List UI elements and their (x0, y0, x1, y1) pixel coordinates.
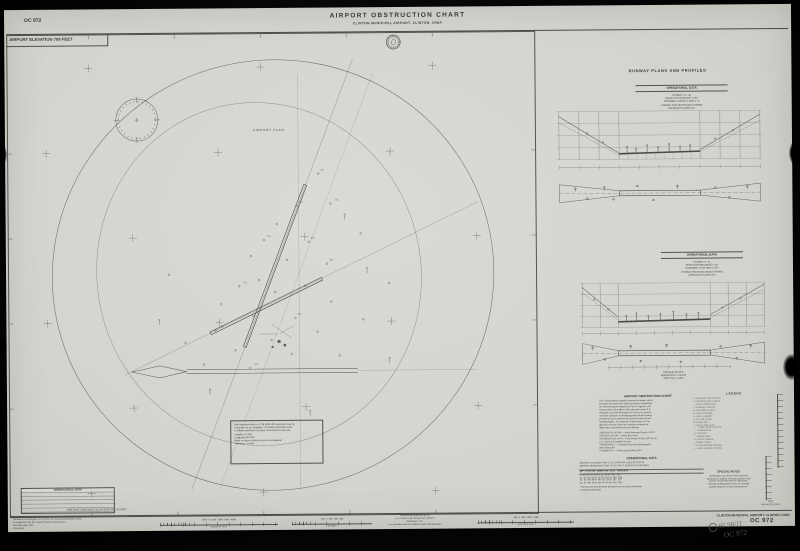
table-rows: 3 41°49'32"N 90°20'14"W 705 70521 41°50'… (580, 473, 704, 486)
spot-elevation: 723 (254, 363, 258, 366)
spot-elevation: 788 (329, 259, 333, 262)
operational-data-mini-1-title: OPERATIONAL DATA (636, 84, 728, 92)
runway-14-32 (243, 184, 306, 347)
vertical-scale-lower (765, 456, 771, 500)
extended-runway-centerline-2 (123, 201, 479, 375)
special-notes-title: SPECIAL NOTES (692, 470, 766, 474)
text-line: PLANIMETRY — Field inspected May 1967 (599, 450, 697, 454)
edge-clip-right-upper (789, 141, 800, 165)
vertical-scale-caption: FEET MEAN SEA LEVEL (750, 501, 792, 507)
legend-items: ⊙ Obstruction with elevation○ Obstructio… (693, 397, 775, 450)
spot-elevation: 836 (311, 237, 315, 240)
spot-elevation: 748 (298, 201, 302, 204)
note-line: grades between runway end elevations. (692, 486, 766, 489)
description-paragraph-2: HORIZONTAL DATUM — North American Datum … (599, 432, 697, 453)
vertical-scale-upper (777, 394, 784, 468)
legend: LEGEND ⊙ Obstruction with elevation○ Obs… (693, 392, 775, 450)
table-footnotes: * Runway end and threshold elevations ar… (580, 486, 704, 493)
legend-item: –·– Airport property boundary (693, 447, 775, 451)
runway-3-21 (210, 277, 323, 334)
special-notes-lines: All elevations are above mean sea level.… (692, 475, 766, 490)
edge-clip-right-lower (783, 354, 800, 380)
runway-plan-14-32 (557, 180, 762, 206)
survey-note-lines: Field elevation datum of 708 (MSL 29') s… (234, 423, 322, 446)
spot-elevation: 761 (320, 169, 324, 172)
operational-data-mini-2-title: OPERATIONAL DATA (661, 251, 743, 259)
chart-limit-ellipse-inner (66, 73, 452, 474)
section-line-horizontal (358, 369, 477, 370)
scale-bar-profile: 500 0 500 1000 1500 SCALE OF FEET (478, 517, 574, 528)
scale-bar-feet-label: SCALE OF FEET (160, 526, 278, 530)
scale-bar-feet-ruler (160, 524, 278, 526)
survey-note-box: Field elevation datum of 708 (MSL 29') s… (230, 420, 323, 465)
profile-scale-caption: PROFILE SCALESHORIZONTAL 1:12,000VERTICA… (611, 370, 736, 381)
taxiways-and-buildings (259, 324, 293, 348)
feet-note: OBSTRUCTIONS AND ELEVATIONS ARE IN FEET (67, 508, 127, 512)
note-line: × denotes – in feet (234, 442, 322, 446)
credit-block: Prepared and published by theU.S. COAST … (360, 514, 470, 526)
vscale-caption-line: MEAN SEA LEVEL (750, 504, 792, 507)
description-paragraph-1: This chart presents a graphic portrayal … (599, 400, 697, 430)
footer-publisher-lines: Published at Washington, D.C. by the U.S… (13, 519, 82, 531)
credit-line: In cooperation with the Federal Aviation… (360, 523, 470, 527)
airport-plan-map: AIRPORT PLAN 761 792 748 836 715 788 742… (6, 31, 539, 518)
legend-title: LEGEND (693, 392, 775, 397)
operational-data-mini-1: OPERATIONAL DATA RUNWAY 14 - 32EFFECTIVE… (622, 84, 742, 110)
spot-elevation: 715 (267, 235, 271, 238)
scale-bar-profile-label: SCALE OF FEET (478, 524, 574, 528)
aeronautical-data-title: AERONAUTICAL DATA (22, 488, 114, 492)
turf-strip (132, 364, 358, 378)
spot-elevation: 742 (243, 281, 247, 284)
spot-elevation: 792 (334, 198, 338, 201)
footnote-line: † Displaced threshold. (580, 489, 704, 493)
spot-elevation: 799 (297, 313, 301, 316)
caption-line: VERTICAL 1:1,200 (611, 377, 736, 381)
handwriting-line: OC 972 (723, 528, 748, 540)
scale-bar-profile-ruler (478, 522, 574, 524)
spot-elevation: 768 (219, 325, 223, 328)
obstruction-symbols (158, 172, 392, 417)
operational-data-mini-2-lines: RUNWAY 3 - 21EFFECTIVE GRADIENT 0.2%PAVE… (647, 260, 757, 277)
chart-description-block: AIRPORT OBSTRUCTION CHART This chart pre… (599, 395, 697, 454)
pencil-circle-mark (708, 522, 718, 532)
runway-plans-profiles-title: RUNWAY PLANS AND PROFILES (544, 68, 790, 75)
footer-chart-number: OC 972 (750, 518, 774, 524)
chart-sheet: OC 972 AIRPORT OBSTRUCTION CHART CLINTON… (4, 4, 795, 532)
photo-backdrop: OC 972 AIRPORT OBSTRUCTION CHART CLINTON… (0, 0, 800, 551)
data-line: APPROACH SLOPE 20:1 (647, 273, 757, 277)
airport-plan-label: AIRPORT PLAN (253, 129, 285, 133)
runway-plan-3-21 (581, 338, 766, 373)
runway-profile-14-32 (557, 108, 763, 180)
compass-rose-icon (114, 97, 160, 143)
runway-profile-3-21 (580, 280, 765, 339)
handwritten-annotations: 95 98/11 OC 972 (708, 519, 748, 542)
description-title: AIRPORT OBSTRUCTION CHART (599, 395, 697, 400)
text-line: Price $1.00 (13, 527, 82, 530)
special-notes: SPECIAL NOTES All elevations are above m… (692, 470, 766, 490)
scale-bar-feet: 1000 0 1000 2000 3000 4000 SCALE OF FEET (160, 519, 278, 530)
operational-data-mini-2: OPERATIONAL DATA RUNWAY 3 - 21EFFECTIVE … (647, 251, 757, 277)
operational-data-table: OPERATIONAL DATA AIRPORT ELEVATION 708 F… (579, 457, 703, 493)
